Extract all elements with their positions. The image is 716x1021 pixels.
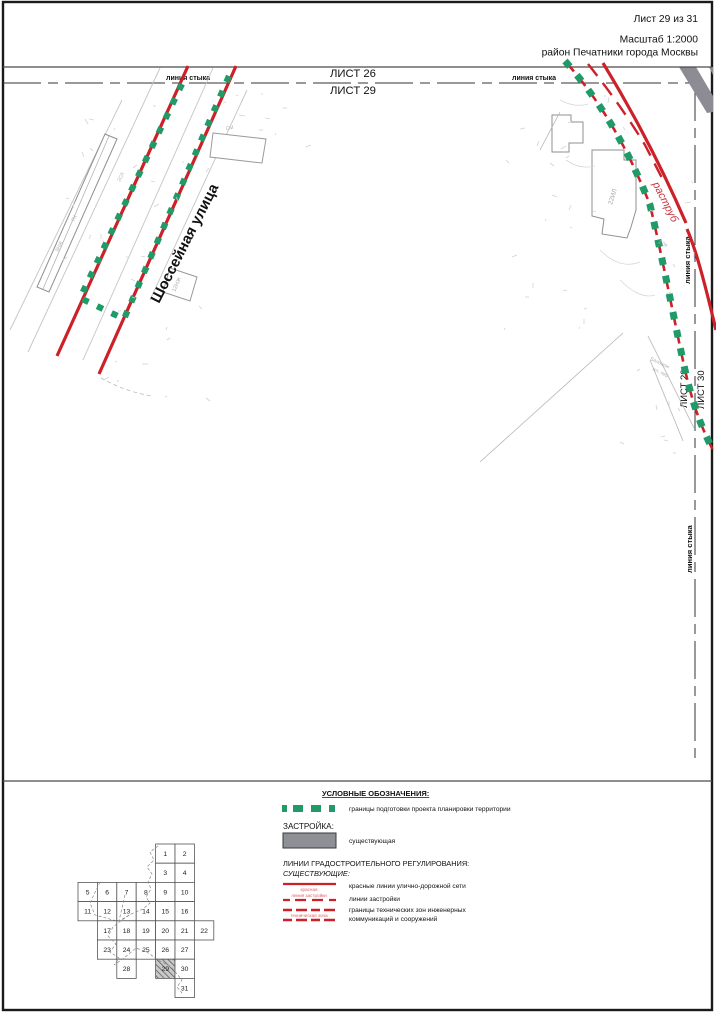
svg-text:5: 5 xyxy=(86,889,90,896)
svg-text:27: 27 xyxy=(181,947,189,954)
svg-text:ЛИСТ 30: ЛИСТ 30 xyxy=(696,370,707,409)
svg-text:границы подготовки проекта пла: границы подготовки проекта планировки те… xyxy=(349,806,511,813)
svg-text:район Печатники города Москвы: район Печатники города Москвы xyxy=(542,48,698,59)
svg-text:18: 18 xyxy=(123,928,131,935)
svg-text:линия стыка: линия стыка xyxy=(685,524,694,573)
svg-text:26: 26 xyxy=(162,947,170,954)
svg-text:6: 6 xyxy=(105,889,109,896)
svg-text:4: 4 xyxy=(183,870,187,877)
svg-text:11: 11 xyxy=(84,909,91,916)
svg-text:границы технических зон инжене: границы технических зон инженерных xyxy=(349,907,466,914)
svg-text:ЛИСТ 29: ЛИСТ 29 xyxy=(330,85,376,97)
svg-text:линия застройки: линия застройки xyxy=(291,892,327,898)
svg-text:СМ: СМ xyxy=(225,125,233,132)
svg-text:Масштаб 1:2000: Масштаб 1:2000 xyxy=(620,34,699,46)
svg-text:линия стыка: линия стыка xyxy=(512,75,556,82)
svg-text:3: 3 xyxy=(163,870,167,877)
svg-text:УСЛОВНЫЕ ОБОЗНАЧЕНИЯ:: УСЛОВНЫЕ ОБОЗНАЧЕНИЯ: xyxy=(322,789,429,798)
svg-text:29: 29 xyxy=(162,966,170,973)
svg-text:существующая: существующая xyxy=(349,838,396,845)
svg-text:31: 31 xyxy=(181,985,189,992)
svg-text:23: 23 xyxy=(103,947,111,954)
svg-text:12: 12 xyxy=(103,909,111,916)
svg-text:Лист 29 из 31: Лист 29 из 31 xyxy=(634,14,699,25)
svg-text:9: 9 xyxy=(163,889,167,896)
svg-text:13: 13 xyxy=(123,909,131,916)
svg-text:техническая зона: техническая зона xyxy=(290,913,328,918)
svg-text:линия стыка: линия стыка xyxy=(166,75,210,82)
svg-text:линии застройки: линии застройки xyxy=(349,895,400,903)
svg-text:28: 28 xyxy=(123,966,131,973)
svg-text:10: 10 xyxy=(181,889,189,896)
svg-text:коммуникаций и сооружений: коммуникаций и сооружений xyxy=(349,915,438,923)
svg-text:16: 16 xyxy=(181,909,189,916)
svg-text:СУЩЕСТВУЮЩИЕ:: СУЩЕСТВУЮЩИЕ: xyxy=(283,869,350,878)
svg-text:2: 2 xyxy=(183,851,187,858)
svg-text:19: 19 xyxy=(142,928,150,935)
svg-text:ЛИСТ 26: ЛИСТ 26 xyxy=(330,68,376,80)
svg-text:20: 20 xyxy=(162,928,170,935)
svg-text:21: 21 xyxy=(181,928,189,935)
svg-text:22: 22 xyxy=(200,928,208,935)
svg-text:24: 24 xyxy=(123,947,131,954)
svg-text:17: 17 xyxy=(103,928,111,935)
svg-text:15: 15 xyxy=(162,909,170,916)
svg-text:ЛИНИИ ГРАДОСТРОИТЕЛЬНОГО РЕГУЛ: ЛИНИИ ГРАДОСТРОИТЕЛЬНОГО РЕГУЛИРОВАНИЯ: xyxy=(283,859,469,868)
svg-text:14: 14 xyxy=(142,909,150,916)
svg-text:красные линии улично-дорожной: красные линии улично-дорожной сети xyxy=(349,882,466,890)
svg-text:ЗАСТРОЙКА:: ЗАСТРОЙКА: xyxy=(283,820,334,831)
svg-text:1: 1 xyxy=(163,851,167,858)
svg-text:30: 30 xyxy=(181,966,189,973)
svg-text:красная: красная xyxy=(301,887,319,892)
